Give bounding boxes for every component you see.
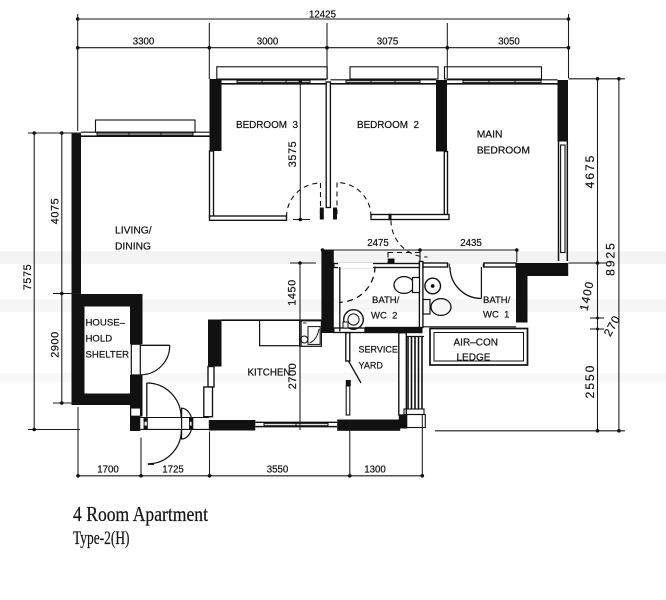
svg-text:7575: 7575	[22, 264, 34, 290]
svg-text:1725: 1725	[162, 465, 184, 476]
svg-text:SHELTER: SHELTER	[86, 350, 130, 361]
svg-text:3075: 3075	[377, 37, 399, 48]
svg-text:BATH/: BATH/	[372, 295, 400, 306]
svg-text:3575: 3575	[287, 141, 299, 167]
svg-text:BEDROOM: BEDROOM	[477, 146, 530, 157]
svg-text:MAIN: MAIN	[477, 130, 503, 141]
svg-text:2435: 2435	[460, 238, 482, 249]
svg-text:4075: 4075	[50, 198, 62, 224]
svg-text:2900: 2900	[50, 331, 62, 357]
svg-text:3550: 3550	[267, 465, 289, 476]
svg-text:KITCHEN: KITCHEN	[248, 368, 291, 379]
svg-text:AIR–CON: AIR–CON	[454, 338, 498, 349]
svg-text:WC 2: WC 2	[371, 311, 397, 322]
svg-text:LEDGE: LEDGE	[457, 353, 491, 364]
svg-text:BATH/: BATH/	[483, 295, 511, 306]
svg-text:BEDROOM 3: BEDROOM 3	[236, 120, 299, 131]
svg-text:4 Room Apartment: 4 Room Apartment	[73, 502, 208, 526]
svg-text:3000: 3000	[257, 37, 279, 48]
svg-text:3300: 3300	[133, 37, 155, 48]
svg-text:Type-2(H): Type-2(H)	[73, 528, 130, 549]
svg-text:3050: 3050	[498, 37, 520, 48]
svg-text:BEDROOM 2: BEDROOM 2	[357, 120, 419, 131]
svg-text:2475: 2475	[367, 238, 389, 249]
svg-text:4675: 4675	[583, 154, 597, 189]
svg-text:1450: 1450	[287, 279, 299, 305]
svg-text:1300: 1300	[364, 465, 386, 476]
svg-text:SERVICE: SERVICE	[359, 345, 398, 355]
svg-text:1700: 1700	[97, 465, 119, 476]
svg-text:12425: 12425	[309, 10, 336, 21]
svg-text:HOUSE–: HOUSE–	[86, 318, 126, 329]
svg-text:8925: 8925	[604, 241, 618, 276]
svg-text:HOLD: HOLD	[86, 334, 113, 345]
svg-text:WC 1: WC 1	[483, 310, 509, 321]
svg-text:DINING: DINING	[115, 242, 151, 253]
svg-text:YARD: YARD	[359, 361, 384, 371]
svg-text:LIVING/: LIVING/	[115, 226, 152, 237]
svg-text:2550: 2550	[583, 364, 597, 399]
